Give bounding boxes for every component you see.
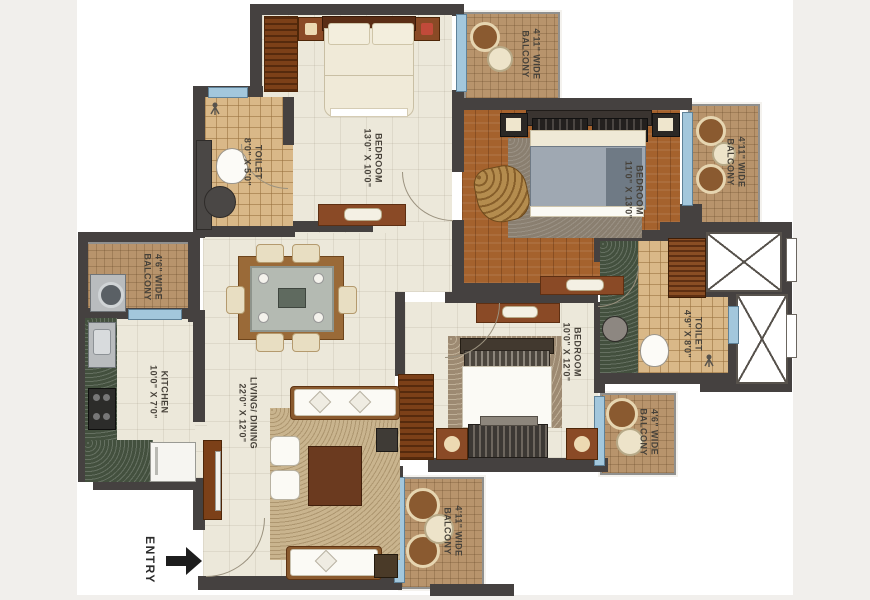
burner <box>103 394 110 401</box>
shower-icon <box>206 100 224 118</box>
dining-table <box>250 266 334 332</box>
entry-arrow-bar <box>166 556 186 566</box>
entry-label: ENTRY <box>143 536 157 584</box>
burner <box>93 394 100 401</box>
toilet-2-grille <box>668 238 706 298</box>
kitchen-counter-bottom <box>85 440 153 482</box>
room-dims: 8'0" X 5'0" <box>241 138 252 186</box>
burner <box>103 413 110 420</box>
room-dims: 11'0" X 13'0" <box>622 161 633 220</box>
shaft-window-1 <box>786 238 797 282</box>
wall <box>452 220 464 232</box>
kitchen-balcony-window <box>128 309 182 320</box>
room-name: 4'6" WIDE <box>152 253 163 300</box>
dining-chair <box>226 286 245 314</box>
kitchen-fridge <box>150 442 196 482</box>
wall <box>78 232 194 242</box>
bedroom-1-label: BEDROOM13'0" X 10'0" <box>361 128 384 187</box>
wall <box>428 458 608 472</box>
balcony-bottom-label: 4'11" WIDEBALCONY <box>441 506 464 557</box>
bedroom-1-dresser-tray <box>344 208 382 221</box>
master-nightstand-left <box>500 113 528 137</box>
bedroom-3-bench <box>480 416 538 426</box>
wall <box>283 97 294 145</box>
room-dims: BALCONY <box>519 29 530 80</box>
corner-table <box>376 428 398 452</box>
room-dims: 13'0" X 10'0" <box>361 128 372 187</box>
room-dims: 4'9" X 8'0" <box>681 310 692 358</box>
dining-chair <box>256 244 284 263</box>
entry-arrow-head <box>186 547 202 575</box>
floor-plan-canvas: ENTRY TOILET8'0" X 5'0" BEDROOM13'0" X 1… <box>0 0 870 600</box>
balcony-top-label: 4'11" WIDEBALCONY <box>519 29 542 80</box>
room-name: TOILET <box>692 310 703 358</box>
bedroom-3-bed-foot <box>468 424 548 458</box>
toilet-1-window <box>208 87 248 98</box>
side-table <box>374 554 398 578</box>
kitchen-stove <box>88 388 116 430</box>
wall <box>395 292 405 376</box>
room-dims: BALCONY <box>724 137 735 188</box>
balcony-chair <box>606 398 638 430</box>
balcony-right-label: 4'6" WIDEBALCONY <box>637 408 660 455</box>
room-dims: BALCONY <box>637 408 648 455</box>
toilet-1-basin <box>204 186 236 218</box>
room-name: 4'11" WIDE <box>452 506 463 557</box>
sink-basin <box>93 329 111 355</box>
shaft-window-2 <box>786 314 797 358</box>
master-balcony-window <box>682 112 693 206</box>
toilet-2-label: TOILET4'9" X 8'0" <box>681 310 704 358</box>
room-name: TOILET <box>252 138 263 186</box>
room-name: LIVING/ DINING <box>247 377 258 449</box>
room-dims: BALCONY <box>441 506 452 557</box>
master-lamp <box>658 118 673 131</box>
plate <box>313 312 324 323</box>
burner <box>93 413 100 420</box>
room-name: KITCHEN <box>158 365 169 419</box>
bedroom-3-label: BEDROOM10'0" X 12'0" <box>560 322 583 381</box>
duct-shaft-2 <box>736 294 788 384</box>
bedroom-3-nightstand-left <box>436 428 468 460</box>
bedroom-1-nightstand-right <box>414 17 440 41</box>
pouf <box>270 436 300 466</box>
master-nightstand-right <box>652 113 680 137</box>
plate <box>258 312 269 323</box>
dining-chair <box>338 286 357 314</box>
room-name: BEDROOM <box>372 128 383 187</box>
tv-screen <box>215 451 221 511</box>
living-dining-label: LIVING/ DINING22'0" X 12'0" <box>236 377 259 449</box>
tv-console <box>203 440 222 520</box>
fridge-handle <box>155 447 158 475</box>
wall <box>250 4 262 94</box>
room-name: 4'11" WIDE <box>735 137 746 188</box>
duct-shaft-1 <box>706 232 782 292</box>
wall <box>452 98 692 110</box>
balcony-master-label: 4'11" WIDEBALCONY <box>724 137 747 188</box>
toilet-1-label: TOILET8'0" X 5'0" <box>241 138 264 186</box>
toilet-2-shaft-window <box>728 306 739 344</box>
toilet-2-floor-green <box>600 241 638 373</box>
toilet-1-counter <box>196 140 212 230</box>
table-runner <box>278 288 306 308</box>
wall <box>430 584 514 596</box>
balcony-chair <box>696 164 726 194</box>
bedroom-1-pillow <box>328 23 370 45</box>
master-lamp <box>506 118 521 131</box>
kitchen-label: KITCHEN10'0" X 7'0" <box>147 365 170 419</box>
bedroom-1-pillow <box>372 23 414 45</box>
bedroom-3-nightstand-right <box>566 428 598 460</box>
dining-chair <box>292 333 320 352</box>
room-dims: 10'0" X 12'0" <box>560 322 571 381</box>
room-dims: 22'0" X 12'0" <box>236 377 247 449</box>
plate <box>258 273 269 284</box>
room-dims: 10'0" X 7'0" <box>147 365 158 419</box>
wall <box>250 4 464 15</box>
washing-machine <box>90 274 126 312</box>
wall <box>193 310 205 422</box>
balcony-left-label: 4'6" WIDEBALCONY <box>141 253 164 300</box>
room-name: BEDROOM <box>571 322 582 381</box>
bedroom-1-bed-runner <box>330 108 408 117</box>
room-name: BEDROOM <box>633 161 644 220</box>
master-bedroom-label: BEDROOM11'0" X 13'0" <box>622 161 645 220</box>
pouf <box>270 470 300 500</box>
bedroom-3-dresser-tray <box>502 306 538 318</box>
room-name: 4'6" WIDE <box>648 408 659 455</box>
toilet-2-basin <box>602 316 628 342</box>
coffee-table <box>308 446 362 506</box>
dining-chair <box>292 244 320 263</box>
bedroom-1-balcony-window <box>456 14 467 92</box>
balcony-table <box>487 46 513 72</box>
kitchen-sink <box>88 322 116 368</box>
room-dims: BALCONY <box>141 253 152 300</box>
plate <box>313 273 324 284</box>
bedroom-3-wardrobe <box>398 374 434 460</box>
bedroom-1-nightstand-left <box>298 17 324 41</box>
room-name: 4'11" WIDE <box>530 29 541 80</box>
dining-chair <box>256 333 284 352</box>
washer-door <box>98 282 124 308</box>
bedroom-1-wardrobe <box>264 16 298 92</box>
toilet-2-wc <box>640 334 669 367</box>
